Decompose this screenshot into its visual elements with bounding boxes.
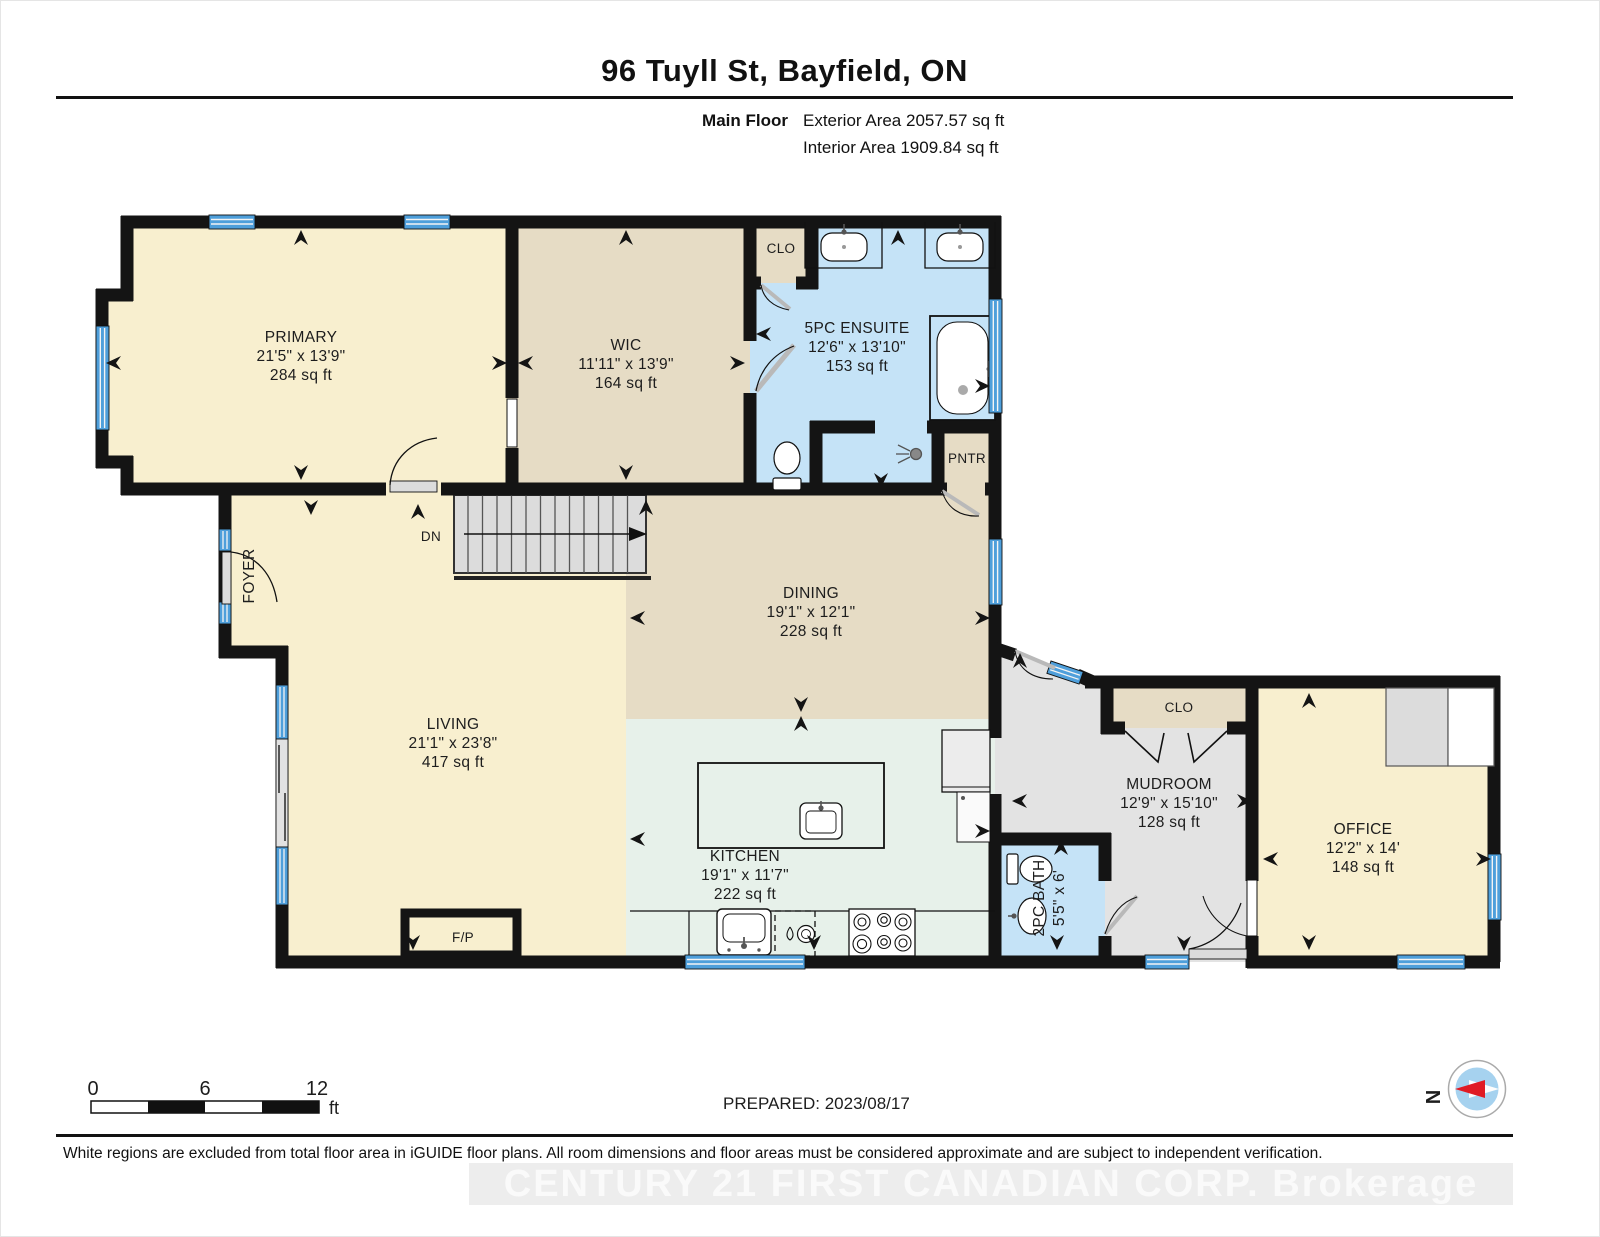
room-dims-bath: 5'5" x 6' — [1051, 870, 1068, 926]
window — [1145, 955, 1189, 969]
kitchen-sink-icon — [717, 909, 771, 955]
scale-tick-0: 0 — [87, 1078, 98, 1100]
scale-unit: ft — [329, 1098, 339, 1118]
room-label-closet-mud: CLO — [1165, 700, 1194, 715]
bathtub-icon — [930, 316, 995, 420]
room-dims-living: 21'1" x 23'8" — [409, 735, 498, 752]
fireplace-label: F/P — [452, 930, 474, 945]
room-area-mudroom: 128 sq ft — [1138, 814, 1201, 831]
room-label-primary: PRIMARY — [265, 329, 337, 346]
room-label-foyer: FOYER — [241, 549, 258, 604]
prepared-date: PREPARED: 2023/08/17 — [723, 1094, 910, 1113]
room-dims-primary: 21'5" x 13'9" — [257, 348, 346, 365]
compass-north-label: N — [1423, 1090, 1445, 1104]
room-area-living: 417 sq ft — [422, 754, 485, 771]
window — [685, 955, 805, 969]
window — [209, 215, 255, 229]
room-area-office: 148 sq ft — [1332, 859, 1395, 876]
stove-icon — [849, 909, 915, 956]
fridge-icon — [942, 730, 990, 792]
room-dims-wic: 11'11" x 13'9" — [578, 356, 674, 373]
floor-plan-page: 96 Tuyll St, Bayfield, ON Main Floor Ext… — [0, 0, 1600, 1237]
window — [276, 685, 288, 739]
window — [219, 529, 231, 551]
room-label-dining: DINING — [783, 585, 839, 602]
window — [96, 326, 109, 430]
window — [1397, 955, 1465, 969]
window — [989, 299, 1002, 413]
room-label-kitchen: KITCHEN — [710, 848, 780, 865]
wic-door — [507, 399, 517, 447]
room-label-pantry: PNTR — [948, 451, 986, 466]
room-label-wic: WIC — [610, 337, 641, 354]
disclaimer-text: White regions are excluded from total fl… — [63, 1145, 1323, 1163]
room-area-ensuite: 153 sq ft — [826, 358, 889, 375]
window — [219, 602, 231, 624]
floor-plan-canvas: PRIMARY 21'5" x 13'9" 284 sq ft WIC 11'1… — [1, 1, 1600, 1237]
room-area-dining: 228 sq ft — [780, 623, 843, 640]
brokerage-watermark: CENTURY 21 FIRST CANADIAN CORP. Brokerag… — [469, 1163, 1513, 1205]
room-dims-kitchen: 19'1" x 11'7" — [701, 867, 789, 884]
room-dims-office: 12'2" x 14' — [1326, 840, 1400, 857]
window — [1488, 854, 1501, 920]
scale-tick-12: 12 — [306, 1078, 328, 1100]
room-dims-ensuite: 12'6" x 13'10" — [808, 339, 906, 356]
stairs — [454, 495, 651, 578]
room-label-ensuite: 5PC ENSUITE — [805, 320, 910, 337]
footer-divider — [56, 1134, 1513, 1137]
room-label-mudroom: MUDROOM — [1126, 776, 1212, 793]
room-label-living: LIVING — [427, 716, 480, 733]
room-dims-mudroom: 12'9" x 15'10" — [1120, 795, 1218, 812]
window — [989, 539, 1002, 605]
room-label-closet-top: CLO — [767, 241, 796, 256]
sliding-door — [276, 739, 288, 847]
window — [276, 847, 288, 905]
office-closet-white — [1448, 688, 1494, 766]
counter-right — [957, 792, 990, 842]
toilet-icon — [773, 442, 801, 490]
room-dims-dining: 19'1" x 12'1" — [767, 604, 856, 621]
scale-tick-6: 6 — [199, 1078, 210, 1100]
room-area-kitchen: 222 sq ft — [714, 886, 777, 903]
stairs-label: DN — [421, 529, 441, 544]
room-area-wic: 164 sq ft — [595, 375, 658, 392]
room-label-office: OFFICE — [1334, 821, 1393, 838]
window — [404, 215, 450, 229]
office-closet-gray — [1386, 688, 1448, 766]
compass-icon: N — [1423, 1061, 1506, 1118]
scale-bar: 0 6 12 ft — [87, 1078, 339, 1118]
room-area-primary: 284 sq ft — [270, 367, 333, 384]
room-label-bath: 2PC BATH — [1031, 859, 1048, 936]
kitchen-island — [698, 763, 884, 848]
